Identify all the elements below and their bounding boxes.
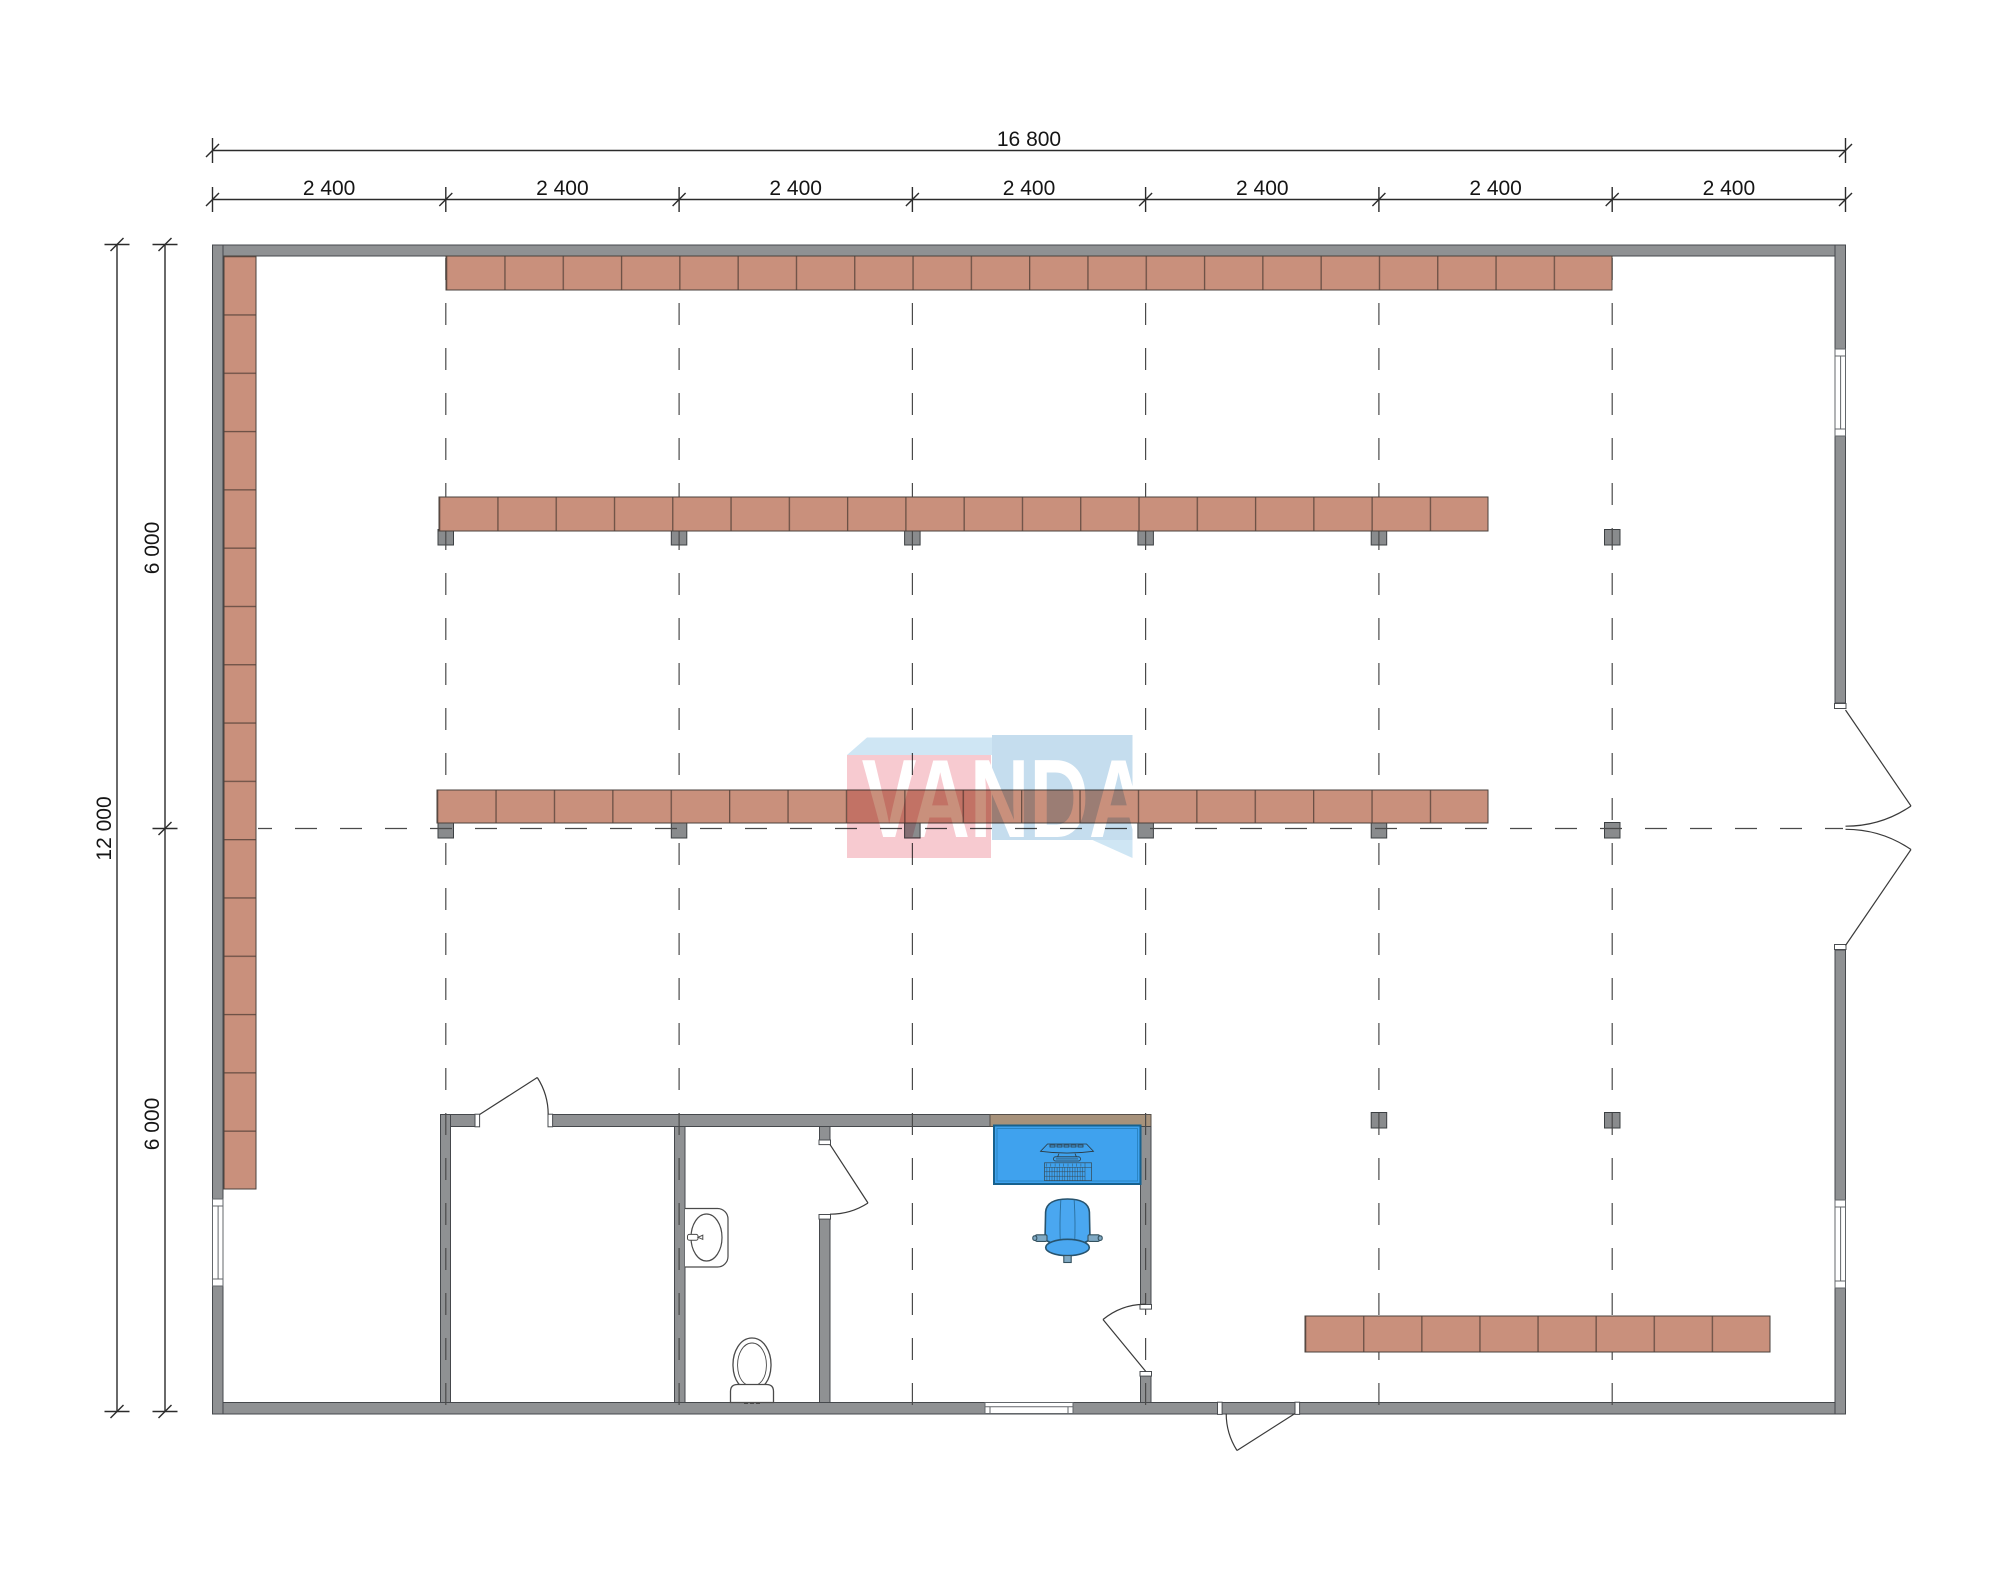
svg-text:2 400: 2 400 (1236, 177, 1289, 200)
svg-text:2 400: 2 400 (303, 177, 356, 200)
svg-text:2 400: 2 400 (769, 177, 822, 200)
svg-text:6 000: 6 000 (141, 1098, 164, 1151)
svg-text:12 000: 12 000 (93, 796, 116, 860)
svg-text:6 000: 6 000 (141, 522, 164, 575)
svg-text:2 400: 2 400 (1003, 177, 1056, 200)
svg-text:2 400: 2 400 (536, 177, 589, 200)
svg-text:16 800: 16 800 (997, 128, 1061, 151)
svg-text:2 400: 2 400 (1469, 177, 1522, 200)
svg-text:2 400: 2 400 (1703, 177, 1756, 200)
